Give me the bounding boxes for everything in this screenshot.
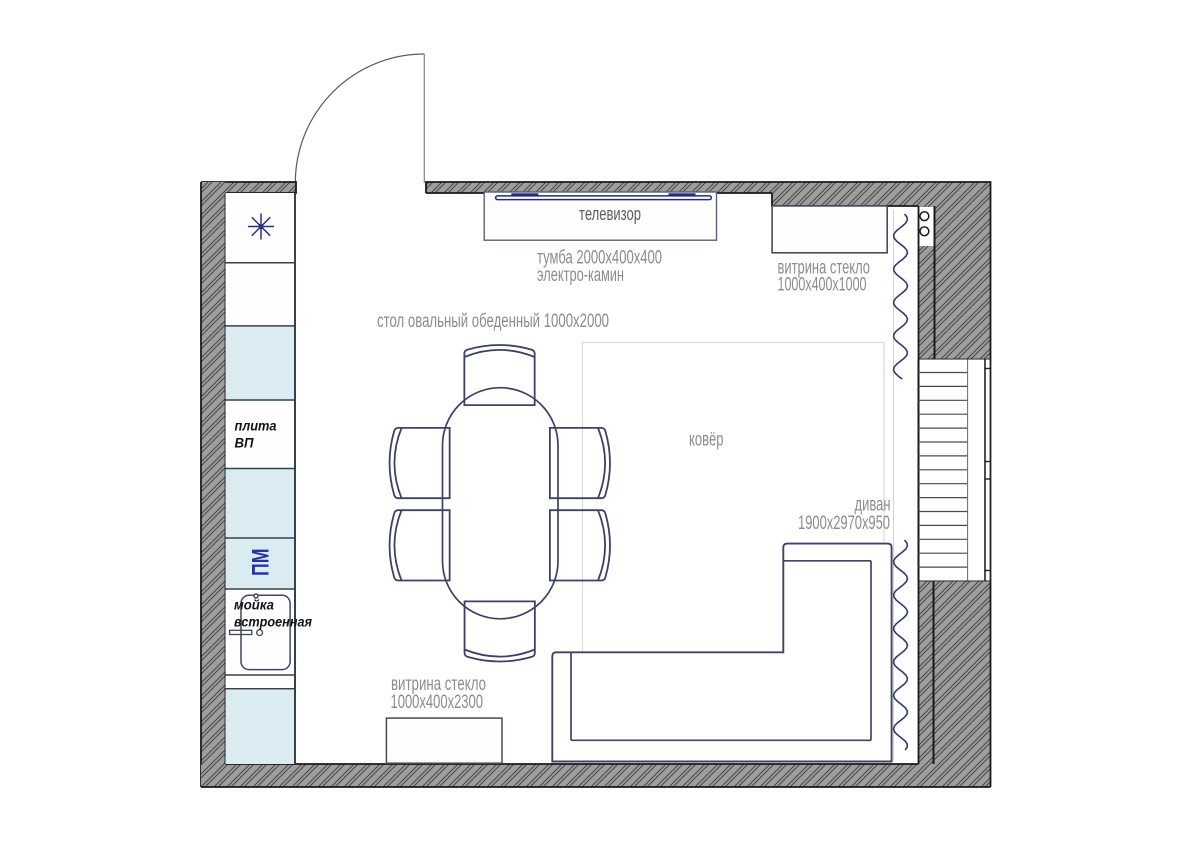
svg-text:1000х400х2300: 1000х400х2300 bbox=[391, 692, 484, 713]
svg-text:телевизор: телевизор bbox=[579, 204, 641, 224]
svg-text:мойка: мойка bbox=[234, 597, 274, 613]
svg-text:стол овальный обеденный 1000х2: стол овальный обеденный 1000х2000 bbox=[377, 311, 609, 332]
svg-text:1900х2970х950: 1900х2970х950 bbox=[798, 513, 890, 534]
svg-text:ВП: ВП bbox=[235, 435, 255, 451]
svg-text:плита: плита bbox=[235, 418, 277, 434]
svg-text:ПМ: ПМ bbox=[248, 548, 275, 576]
svg-text:ковёр: ковёр bbox=[689, 430, 724, 451]
svg-text:встроенная: встроенная bbox=[234, 614, 312, 630]
svg-text:1000х400х1000: 1000х400х1000 bbox=[778, 275, 867, 296]
svg-text:электро-камин: электро-камин bbox=[537, 265, 624, 286]
